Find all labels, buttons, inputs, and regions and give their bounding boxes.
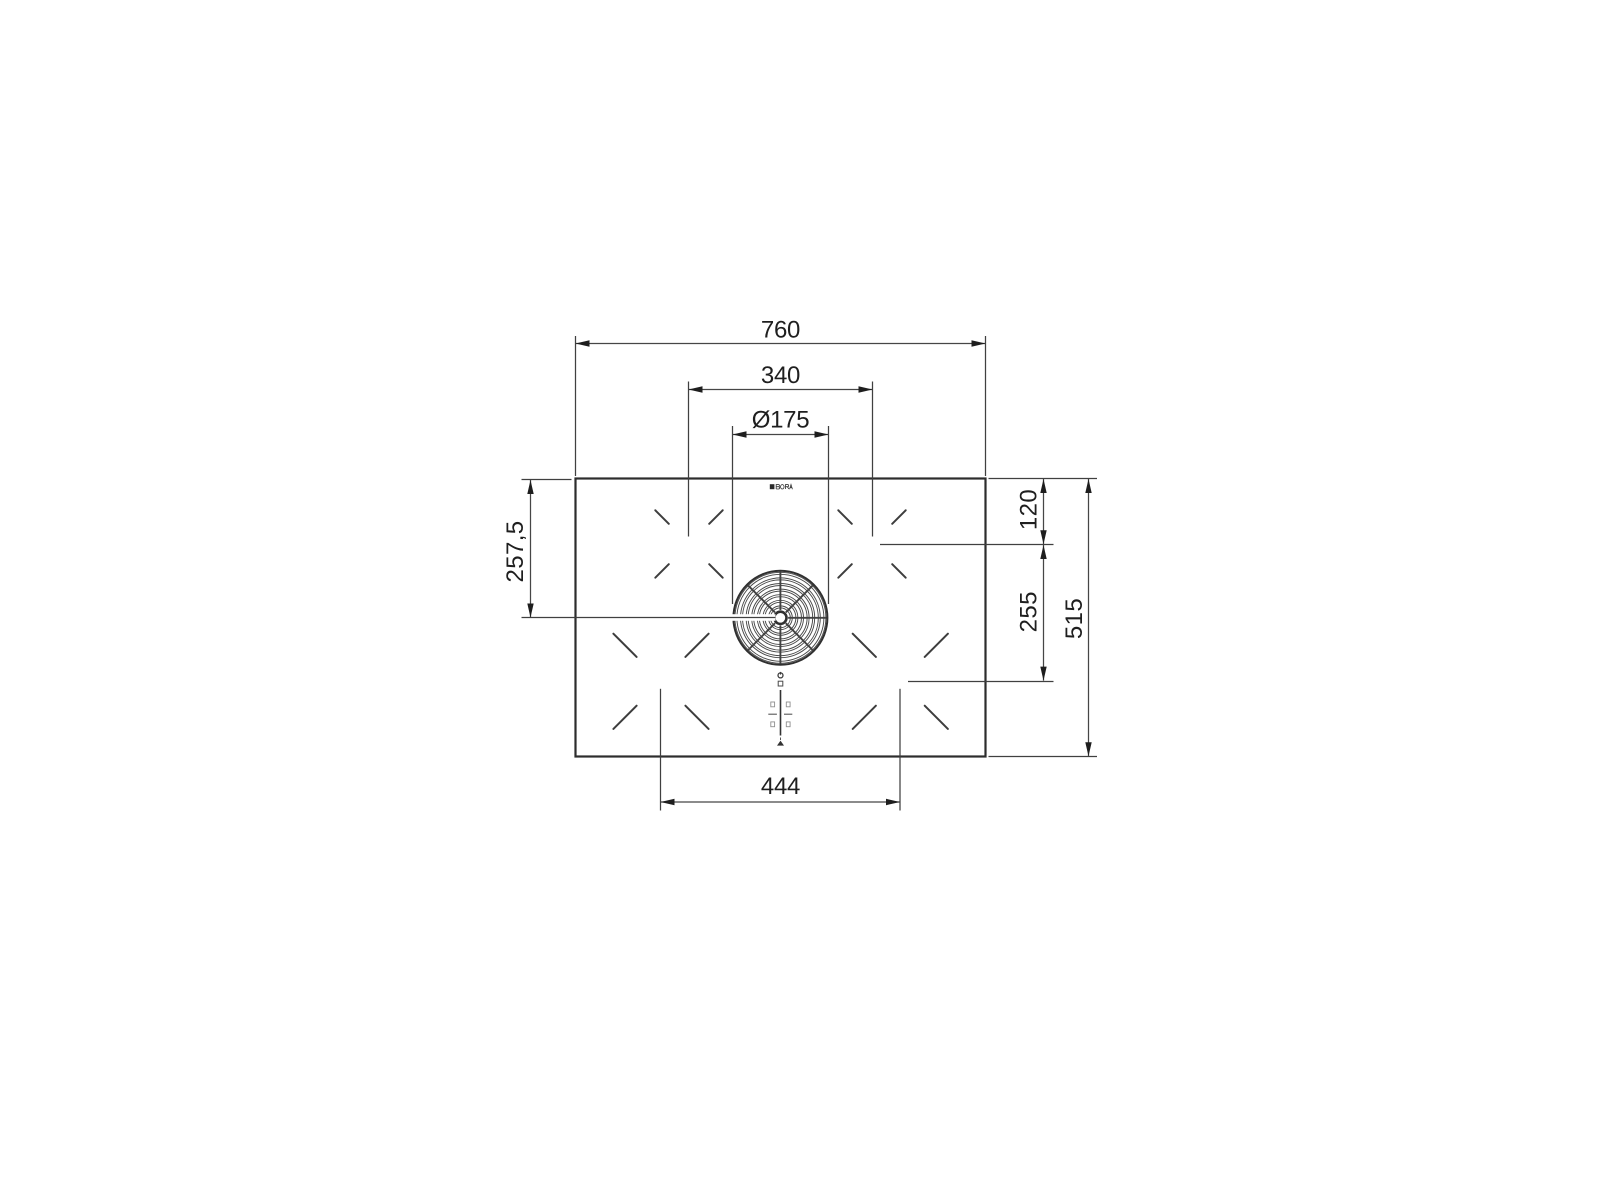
svg-text:515: 515 xyxy=(1061,598,1088,639)
svg-text:255: 255 xyxy=(1016,591,1043,632)
svg-text:760: 760 xyxy=(761,316,800,343)
svg-text:444: 444 xyxy=(761,773,800,800)
svg-text:340: 340 xyxy=(761,362,800,389)
svg-text:120: 120 xyxy=(1016,489,1043,530)
svg-text:257,5: 257,5 xyxy=(502,520,529,582)
svg-text:Ø175: Ø175 xyxy=(752,406,810,433)
